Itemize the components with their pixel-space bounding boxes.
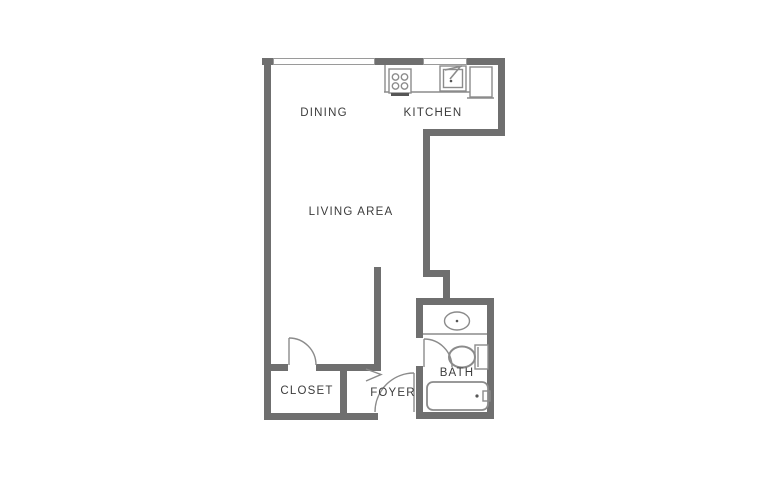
room-label-foyer: FOYER (370, 388, 416, 400)
chevron-opening-icon (366, 369, 381, 381)
room-label-living: LIVING AREA (309, 207, 394, 219)
room-label-kitchen: KITCHEN (404, 108, 463, 120)
toilet-icon (449, 345, 488, 369)
bathtub-icon (427, 382, 490, 410)
bath-door-icon (424, 339, 452, 367)
closet-door-icon (289, 338, 316, 365)
room-label-closet: CLOSET (280, 386, 333, 398)
room-label-dining: DINING (300, 108, 347, 120)
room-label-bath: BATH (440, 368, 475, 380)
kitchen-sink-icon (440, 66, 466, 91)
floor-plan: DINING KITCHEN LIVING AREA CLOSET FOYER … (0, 0, 768, 480)
fixtures-layer (0, 0, 768, 480)
stove-icon (389, 69, 411, 96)
refrigerator-icon (467, 67, 494, 98)
vanity-sink-icon (423, 312, 487, 334)
